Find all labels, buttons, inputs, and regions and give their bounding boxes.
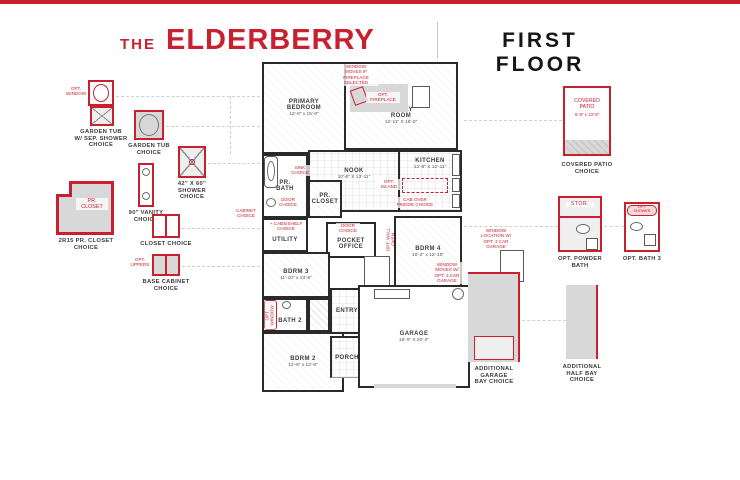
fridge-icon <box>452 154 460 176</box>
closet-caption: CLOSET CHOICE <box>138 241 194 248</box>
floor-label: FIRST FLOOR <box>455 29 625 77</box>
sink-choice-label: SINK CHOICE <box>288 165 312 176</box>
sink-icon <box>282 301 291 309</box>
opt-island-label: OPT. ISLAND <box>378 179 400 190</box>
room-primary-closet: PR. CLOSET <box>308 180 342 218</box>
cabinet-divider <box>165 256 167 274</box>
water-heater-icon <box>374 289 410 299</box>
room-dims: 11'-10" x 13'-8" <box>280 276 312 281</box>
leader-line <box>182 228 260 229</box>
room-name: PR. CLOSET <box>312 193 339 205</box>
toilet-icon <box>576 224 590 234</box>
tub-icon <box>93 84 109 102</box>
hall-closet <box>364 256 390 286</box>
room-name: BDRM 3 <box>283 269 308 275</box>
room-dims: 12'-11" X 18'-0" <box>385 120 418 125</box>
sink-icon <box>586 238 598 250</box>
leader-line <box>522 320 566 321</box>
room-name: ENTRY <box>336 308 358 314</box>
room-name: PRIMARY BEDROOM <box>287 99 321 111</box>
leader-line <box>464 120 562 121</box>
room-dims: 12'-6" x 13'-8" <box>288 363 318 368</box>
door-choice-office-label: DOOR CHOICE <box>336 223 360 234</box>
window-icon <box>412 86 430 108</box>
covered-patio-caption: COVERED PATIO CHOICE <box>550 162 624 175</box>
powder-wall <box>560 216 600 218</box>
bath3-caption: OPT. BATH 3 <box>618 256 666 263</box>
toilet-icon <box>630 222 643 231</box>
toilet-icon <box>266 198 276 207</box>
header-divider <box>437 22 438 58</box>
opt-window-note: OPT. WINDOW <box>66 86 86 97</box>
bath2-closet <box>308 298 330 332</box>
garage-door <box>374 384 456 388</box>
room-dims: 19'-0" X 20'-0" <box>399 338 429 343</box>
room-dims: 12'-8" x 15'-0" <box>289 112 319 117</box>
sink-icon <box>142 168 150 176</box>
room-garage: GARAGE 19'-0" X 20'-0" <box>358 285 470 388</box>
room-name: POCKET OFFICE <box>337 238 364 250</box>
tub-icon <box>139 114 159 136</box>
room-name: KITCHEN <box>415 158 444 164</box>
sep-shower-icon <box>90 106 114 126</box>
fireplace-window-note: WINDOW MOVES IF FIREPLACE SELECTED <box>334 64 378 86</box>
additional-half-bay <box>566 285 598 359</box>
drain-icon <box>189 159 195 165</box>
room-dims: 10'-2" x 12'-10" <box>412 253 444 258</box>
leader-line <box>604 226 624 227</box>
opt-shower-note: OPT. SHOWER <box>630 205 654 214</box>
room-bdrm3: BDRM 3 11'-10" x 13'-8" <box>262 252 330 298</box>
title-plan-name: ELDERBERRY <box>166 24 375 57</box>
door-choice-label: DOOR CHOICE <box>276 197 300 208</box>
cab-over-fridge-label: CAB OVER FRIDGE CHOICE <box>396 197 434 208</box>
title-the: THE <box>120 36 156 53</box>
room-dims: 13'-8" X 12'-11" <box>414 165 447 170</box>
room-name: BDRM 2 <box>290 356 315 362</box>
opt-island-outline <box>402 178 448 193</box>
opt-window-bath2-label: OPT. WINDOW <box>265 301 276 329</box>
sink-icon <box>142 192 150 200</box>
oven-icon <box>452 178 460 192</box>
additional-garage-bay-caption: ADDITIONAL GARAGE BAY CHOICE <box>462 366 526 386</box>
closet-notch <box>56 181 72 197</box>
room-name: NOOK <box>344 168 364 174</box>
room-name: GARAGE <box>400 331 429 337</box>
covered-patio-dims: 6'-8" x 13'-8" <box>567 112 607 117</box>
room-name: PORCH <box>335 355 359 361</box>
leader-line <box>116 96 260 97</box>
additional-half-bay-caption: ADDITIONAL HALF BAY CHOICE <box>548 364 616 384</box>
pr-closet-room-label: PR. CLOSET <box>76 198 108 210</box>
additional-bay-door <box>474 336 514 360</box>
powder-bath-caption: OPT. POWDER BATH <box>552 256 608 269</box>
tub-basin-icon <box>267 161 275 181</box>
leader-line <box>166 126 260 127</box>
covered-patio-room-label: COVERED PATIO <box>567 98 607 110</box>
stor-label: STOR. <box>566 202 594 207</box>
room-name: UTILITY <box>272 237 297 243</box>
leader-line <box>208 163 260 164</box>
room-dims: 10'-8" X 13'-11" <box>338 175 371 180</box>
page-title: THE ELDERBERRY <box>120 24 375 57</box>
counter-icon <box>452 194 460 208</box>
leader-line <box>230 96 231 154</box>
closet-divider <box>165 216 167 236</box>
bdrm4-window-note: WINDOW MOVES W/ OPT. 3 CAR GARAGE <box>432 262 462 284</box>
top-accent-bar <box>0 0 740 4</box>
pr-closet-caption: 2R15 PR. CLOSET CHOICE <box>56 238 116 251</box>
cabinet-choice-label: CABINET CHOICE <box>232 208 260 219</box>
leader-line <box>464 226 558 227</box>
leader-line <box>182 266 260 267</box>
shower-caption: 42" X 60" SHOWER CHOICE <box>164 181 220 201</box>
room-name: PR. BATH <box>276 180 294 192</box>
sink-icon <box>644 234 656 246</box>
opt-uppers-note: OPT. UPPERS <box>130 257 150 268</box>
room-name: BDRM 4 <box>415 246 440 252</box>
floorplan-page: THE ELDERBERRY FIRST FLOOR PRIMARY BEDRO… <box>0 0 740 480</box>
room-name: BATH 2 <box>278 318 302 324</box>
mech-icon <box>452 288 464 300</box>
patio-steps <box>565 140 609 154</box>
base-cabinet-caption: BASE CABINET CHOICE <box>138 279 194 292</box>
garage-window-note: WINDOW LOCATION W/ OPT. 3 CAR GARAGE <box>478 228 514 250</box>
opt-fireplace-label: OPT. FIREPLACE <box>366 92 400 103</box>
cabs-shelf-choice-label: + CABS/SHELF CHOICE <box>268 221 304 232</box>
garden-tub-caption: GARDEN TUB CHOICE <box>122 143 176 156</box>
